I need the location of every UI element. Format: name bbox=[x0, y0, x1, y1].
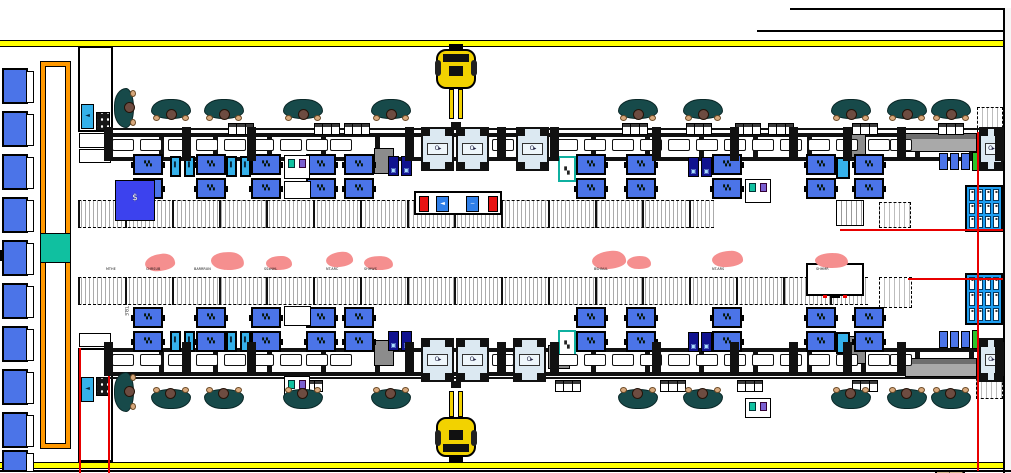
conveyor-post bbox=[843, 127, 852, 161]
worker-hand bbox=[130, 403, 136, 410]
cart bbox=[879, 202, 911, 228]
pallet-plate bbox=[522, 143, 543, 155]
rack-shelf bbox=[965, 273, 1003, 325]
bin-cell bbox=[947, 124, 955, 134]
station-box bbox=[251, 178, 281, 199]
station-label: CHRSUB bbox=[146, 266, 160, 270]
worker-hand bbox=[889, 387, 896, 393]
pallet-corner bbox=[537, 373, 544, 380]
pallet bbox=[2, 197, 28, 233]
worker-head bbox=[297, 388, 308, 399]
worker-head bbox=[845, 388, 856, 399]
station-box bbox=[806, 154, 836, 175]
mini-station-box bbox=[961, 153, 970, 170]
station-box bbox=[854, 307, 884, 328]
pallet-plate bbox=[462, 143, 483, 155]
conveyor-plate bbox=[196, 139, 218, 151]
worker-hand bbox=[833, 115, 840, 121]
blue-trio bbox=[938, 330, 971, 349]
mini-station-box bbox=[939, 331, 948, 348]
station-box bbox=[806, 331, 836, 352]
bin-cell bbox=[323, 124, 331, 134]
worker-hand bbox=[889, 115, 896, 121]
station-box bbox=[344, 307, 374, 328]
pallet bbox=[2, 369, 28, 405]
bin-cell bbox=[353, 124, 361, 134]
bin-cell bbox=[229, 124, 237, 134]
pallet-lt bbox=[456, 338, 489, 382]
shelf-cell bbox=[993, 292, 999, 305]
pallet bbox=[2, 412, 28, 448]
conveyor-plate bbox=[556, 139, 578, 151]
conveyor-plate bbox=[808, 139, 830, 151]
pair bbox=[196, 154, 226, 199]
conveyor-post bbox=[550, 342, 559, 376]
ramp bbox=[905, 133, 977, 152]
conveyor-plate bbox=[696, 354, 718, 366]
worker-hand bbox=[182, 115, 189, 121]
station-box bbox=[576, 307, 606, 328]
hred bbox=[908, 278, 1003, 280]
roller-table bbox=[836, 200, 864, 226]
pallet-corner bbox=[480, 373, 487, 380]
robot-arm bbox=[449, 89, 454, 119]
pallet-corner bbox=[445, 340, 452, 347]
pallet-plate bbox=[519, 354, 540, 366]
bin bbox=[555, 380, 581, 392]
worker-hand bbox=[962, 387, 969, 393]
pallet-lt bbox=[513, 338, 546, 382]
robot-body bbox=[436, 417, 476, 457]
worker-head bbox=[697, 388, 708, 399]
worker-hand bbox=[373, 387, 380, 393]
conveyor-plate bbox=[752, 354, 774, 366]
blue-square bbox=[115, 180, 155, 221]
pallet bbox=[2, 111, 28, 147]
bin-cell bbox=[744, 124, 752, 134]
worker-hand bbox=[918, 115, 925, 121]
station-box bbox=[344, 331, 374, 352]
station-box bbox=[306, 154, 336, 175]
worker-hand bbox=[620, 115, 627, 121]
worker-hand bbox=[862, 387, 869, 393]
shelf-cell bbox=[993, 189, 999, 201]
pallet-plate bbox=[427, 143, 448, 155]
worker-hand bbox=[153, 387, 160, 393]
pallet-corner bbox=[423, 162, 430, 169]
station-box bbox=[806, 178, 836, 199]
station-box bbox=[344, 154, 374, 175]
worker-hand bbox=[235, 115, 242, 121]
pair bbox=[576, 154, 606, 199]
robot-body bbox=[436, 49, 476, 89]
robot-pod bbox=[435, 430, 441, 446]
worker-head bbox=[846, 109, 857, 120]
navy-duo bbox=[688, 157, 712, 177]
conveyor-plate bbox=[112, 354, 134, 366]
worker-hand bbox=[685, 387, 692, 393]
pair bbox=[344, 154, 374, 199]
bin-cell bbox=[746, 381, 754, 391]
robot-pod bbox=[471, 430, 477, 446]
conveyor-plate bbox=[224, 354, 246, 366]
station-label: SHHWS bbox=[364, 266, 377, 270]
worker-hand bbox=[620, 387, 627, 393]
worker-head bbox=[124, 386, 135, 397]
worker-head bbox=[633, 109, 644, 120]
cyan-door bbox=[81, 377, 94, 402]
conveyor-plate bbox=[280, 354, 302, 366]
bin-cell bbox=[695, 124, 703, 134]
pallet-lt bbox=[516, 127, 549, 171]
station-label: NT.ARS bbox=[712, 266, 724, 270]
control-box bbox=[170, 156, 181, 177]
pallet-corner bbox=[540, 162, 547, 169]
worker-head bbox=[385, 388, 396, 399]
worker-figure bbox=[204, 99, 244, 125]
worker-hand bbox=[862, 115, 869, 121]
robot-arm bbox=[458, 391, 463, 417]
worker-head bbox=[298, 109, 309, 120]
teal-screen-icon bbox=[749, 402, 756, 411]
robot-arm bbox=[458, 89, 463, 119]
blue-trio bbox=[938, 152, 971, 171]
cart bbox=[879, 277, 912, 308]
shelf-cell bbox=[993, 203, 999, 215]
conveyor-post bbox=[730, 127, 739, 161]
bin-cell bbox=[777, 124, 785, 134]
pallet-corner bbox=[515, 340, 522, 347]
conveyor-plate bbox=[696, 139, 718, 151]
pair bbox=[854, 154, 884, 199]
pallet-corner bbox=[515, 373, 522, 380]
worker-hand bbox=[130, 90, 136, 97]
shelf-cell bbox=[985, 292, 991, 305]
conveyor-plate bbox=[306, 139, 328, 151]
station-box bbox=[626, 307, 656, 328]
computer bbox=[284, 155, 310, 179]
station-box bbox=[251, 307, 281, 328]
conveyor-plate bbox=[612, 354, 634, 366]
worker-figure bbox=[618, 383, 658, 409]
station-label: SSxNHL bbox=[264, 266, 277, 270]
table bbox=[284, 181, 311, 199]
conveyor-post bbox=[104, 342, 113, 376]
pallet-corner bbox=[540, 129, 547, 136]
station-box bbox=[854, 178, 884, 199]
conveyor-plate bbox=[140, 354, 162, 366]
pallet-corner bbox=[518, 129, 525, 136]
mini-station-box bbox=[939, 153, 948, 170]
conveyor-plate bbox=[584, 139, 606, 151]
worker-head bbox=[901, 388, 912, 399]
blue-fixture: − bbox=[466, 196, 479, 212]
pallet-lt bbox=[421, 338, 454, 382]
worker-hand bbox=[206, 115, 213, 121]
computer bbox=[745, 398, 771, 418]
conveyor-post bbox=[843, 342, 852, 376]
station-box bbox=[712, 307, 742, 328]
robot-gripper bbox=[451, 381, 461, 388]
shelf-cell bbox=[969, 308, 975, 321]
pallet-corner bbox=[480, 162, 487, 169]
pair bbox=[806, 307, 836, 352]
hline bbox=[757, 30, 1003, 32]
pallet-corner bbox=[981, 373, 988, 380]
bin bbox=[737, 380, 763, 392]
worker-head bbox=[946, 109, 957, 120]
hline bbox=[0, 470, 1011, 472]
bin-cell bbox=[755, 381, 762, 391]
teal-device bbox=[558, 330, 576, 356]
mini-station-box bbox=[950, 331, 959, 348]
bin-cell bbox=[556, 381, 564, 391]
flow-conveyor bbox=[78, 277, 868, 305]
bin-cell bbox=[623, 124, 631, 134]
worker-figure bbox=[887, 99, 927, 125]
conveyor-plate bbox=[306, 354, 328, 366]
pallet bbox=[2, 68, 28, 104]
bin-cell bbox=[362, 124, 369, 134]
conveyor-plate bbox=[808, 354, 830, 366]
worker-hand bbox=[130, 119, 136, 126]
pallet bbox=[2, 154, 28, 190]
worker-figure bbox=[151, 383, 191, 409]
shelf-cell bbox=[985, 308, 991, 321]
bin-cell bbox=[332, 124, 339, 134]
blue-fixture: ◄ bbox=[436, 196, 449, 212]
conveyor-post bbox=[897, 342, 906, 376]
factory-layout-canvas[interactable]: ◄−◄−MTHECHRSUBBARRRUNSSxNHLNT.ARCSHHWSBS… bbox=[0, 0, 1011, 473]
worker-head bbox=[386, 109, 397, 120]
pallet bbox=[2, 450, 28, 472]
bin-cell bbox=[573, 381, 580, 391]
worker-hand bbox=[402, 387, 409, 393]
monitor-box bbox=[701, 332, 712, 352]
worker-hand bbox=[182, 387, 189, 393]
monitor-box bbox=[701, 157, 712, 177]
pallet-corner bbox=[537, 340, 544, 347]
worker-hand bbox=[649, 115, 656, 121]
hline bbox=[790, 8, 1003, 10]
fixture-row: ◄− bbox=[414, 191, 502, 215]
bin-cell bbox=[669, 381, 677, 391]
station-box bbox=[576, 331, 606, 352]
conveyor-plate bbox=[868, 354, 890, 366]
worker-figure bbox=[618, 99, 658, 125]
conveyor-plate bbox=[196, 354, 218, 366]
conveyor-plate bbox=[330, 354, 352, 366]
pallet-corner bbox=[518, 162, 525, 169]
teal-device bbox=[558, 156, 576, 182]
monitor-box bbox=[388, 331, 399, 351]
conveyor-post bbox=[730, 342, 739, 376]
conveyor-plate bbox=[584, 354, 606, 366]
pallet-lt bbox=[456, 127, 489, 171]
station-box bbox=[806, 307, 836, 328]
conveyor-post bbox=[405, 127, 414, 161]
worker-head bbox=[219, 109, 230, 120]
station-box bbox=[344, 178, 374, 199]
station-box bbox=[712, 178, 742, 199]
worker-hand bbox=[130, 374, 136, 381]
station-box bbox=[854, 154, 884, 175]
worker-hand bbox=[685, 115, 692, 121]
conveyor-plate bbox=[224, 139, 246, 151]
bin-cell bbox=[939, 124, 947, 134]
vred bbox=[977, 132, 979, 471]
robot-gripper bbox=[451, 122, 461, 129]
bin bbox=[344, 123, 370, 135]
conveyor-plate bbox=[556, 354, 578, 366]
station-label: NT.ARC bbox=[326, 266, 338, 270]
station-box bbox=[576, 154, 606, 175]
conveyor-plate bbox=[330, 139, 352, 151]
worker-head bbox=[124, 102, 135, 113]
worker-head bbox=[632, 388, 643, 399]
worker-hand bbox=[933, 387, 940, 393]
station-box bbox=[196, 178, 226, 199]
worker-hand bbox=[314, 387, 321, 393]
pallet-corner bbox=[458, 340, 465, 347]
conveyor-post bbox=[182, 127, 191, 161]
worker-hand bbox=[285, 387, 292, 393]
worker-hand bbox=[649, 387, 656, 393]
worker-figure bbox=[371, 383, 411, 409]
purple-screen-icon bbox=[760, 183, 767, 192]
pallet-corner bbox=[423, 129, 430, 136]
yellow-wall bbox=[0, 462, 1003, 469]
vertical-station-label: T.B.E bbox=[114, 306, 128, 346]
pallet-corner bbox=[981, 162, 988, 169]
robot bbox=[436, 378, 476, 462]
pair bbox=[133, 307, 163, 352]
shelf-cell bbox=[993, 308, 999, 321]
shelf-cell bbox=[969, 203, 975, 215]
bin-cell bbox=[631, 124, 639, 134]
station-label: SHHMR bbox=[816, 266, 829, 270]
conveyor-plate bbox=[668, 354, 690, 366]
conveyor-post bbox=[497, 342, 506, 376]
bin-cell bbox=[315, 124, 323, 134]
worker-head bbox=[166, 109, 177, 120]
lift-platform bbox=[40, 233, 71, 263]
conveyor-post bbox=[497, 127, 506, 161]
purple-screen-icon bbox=[299, 159, 306, 168]
worker-figure bbox=[931, 99, 971, 125]
worker-head bbox=[165, 388, 176, 399]
worker-hand bbox=[918, 387, 925, 393]
conveyor-post bbox=[897, 127, 906, 161]
worker-figure bbox=[683, 383, 723, 409]
bin-cell bbox=[738, 381, 746, 391]
bin-cell bbox=[345, 124, 353, 134]
shelf-cell bbox=[993, 216, 999, 228]
bin-cell bbox=[640, 124, 647, 134]
worker-hand bbox=[373, 115, 380, 121]
mini-station-box bbox=[950, 153, 959, 170]
rail bbox=[105, 377, 1003, 379]
pair bbox=[806, 154, 836, 199]
bin-cell bbox=[861, 124, 869, 134]
pallet-plate bbox=[427, 354, 448, 366]
bin-cell bbox=[564, 381, 572, 391]
station-box bbox=[196, 307, 226, 328]
worker-hand bbox=[235, 387, 242, 393]
pallet bbox=[2, 283, 28, 319]
conveyor-post bbox=[789, 127, 798, 161]
worker-figure bbox=[931, 383, 971, 409]
worker-figure bbox=[683, 99, 723, 125]
worker-head bbox=[945, 388, 956, 399]
station-box bbox=[854, 331, 884, 352]
control-box bbox=[170, 331, 181, 352]
robot-arm bbox=[449, 391, 454, 417]
shelf-cell bbox=[969, 216, 975, 228]
worker-figure bbox=[283, 99, 323, 125]
worker-hand bbox=[402, 115, 409, 121]
blue-fixture bbox=[488, 196, 498, 212]
pair bbox=[344, 307, 374, 352]
worker-head bbox=[698, 109, 709, 120]
worker-hand bbox=[153, 115, 160, 121]
conveyor-plate bbox=[140, 139, 162, 151]
robot-pod bbox=[471, 60, 477, 76]
worker-hand bbox=[962, 115, 969, 121]
cyan-door bbox=[81, 104, 94, 129]
pair bbox=[854, 307, 884, 352]
bin-cell bbox=[956, 124, 963, 134]
worker-figure bbox=[151, 99, 191, 125]
pallet-corner bbox=[480, 129, 487, 136]
conveyor-post bbox=[182, 342, 191, 376]
worker-hand bbox=[714, 387, 721, 393]
worker-figure bbox=[204, 383, 244, 409]
pallet-corner bbox=[981, 129, 988, 136]
side-strip bbox=[1003, 8, 1011, 473]
station-box bbox=[133, 154, 163, 175]
shelf-cell bbox=[985, 189, 991, 201]
conveyor-plate bbox=[868, 139, 890, 151]
pair bbox=[576, 307, 606, 352]
conveyor-post bbox=[104, 127, 113, 161]
worker-figure bbox=[371, 99, 411, 125]
conveyor-post bbox=[247, 127, 256, 161]
station-box bbox=[133, 307, 163, 328]
pallet-corner bbox=[423, 373, 430, 380]
bin-cell bbox=[237, 124, 245, 134]
conveyor-post bbox=[652, 127, 661, 161]
pallet-lt bbox=[421, 127, 454, 171]
worker-hand bbox=[285, 115, 292, 121]
worker-figure bbox=[831, 383, 871, 409]
pallet-corner bbox=[458, 162, 465, 169]
station-box bbox=[196, 331, 226, 352]
pallet bbox=[2, 240, 28, 276]
yellow-wall bbox=[0, 40, 1003, 47]
conveyor-post bbox=[550, 127, 559, 161]
monitor-box bbox=[688, 157, 699, 177]
conveyor-post bbox=[405, 342, 414, 376]
conveyor-post bbox=[995, 127, 1004, 161]
station-label: BSHNUL bbox=[594, 266, 608, 270]
flow-conveyor bbox=[78, 200, 714, 228]
worker-hand bbox=[206, 387, 213, 393]
pallet-corner bbox=[994, 162, 1001, 169]
robot-pod bbox=[435, 60, 441, 76]
pallet-corner bbox=[480, 340, 487, 347]
conveyor-plate bbox=[668, 139, 690, 151]
